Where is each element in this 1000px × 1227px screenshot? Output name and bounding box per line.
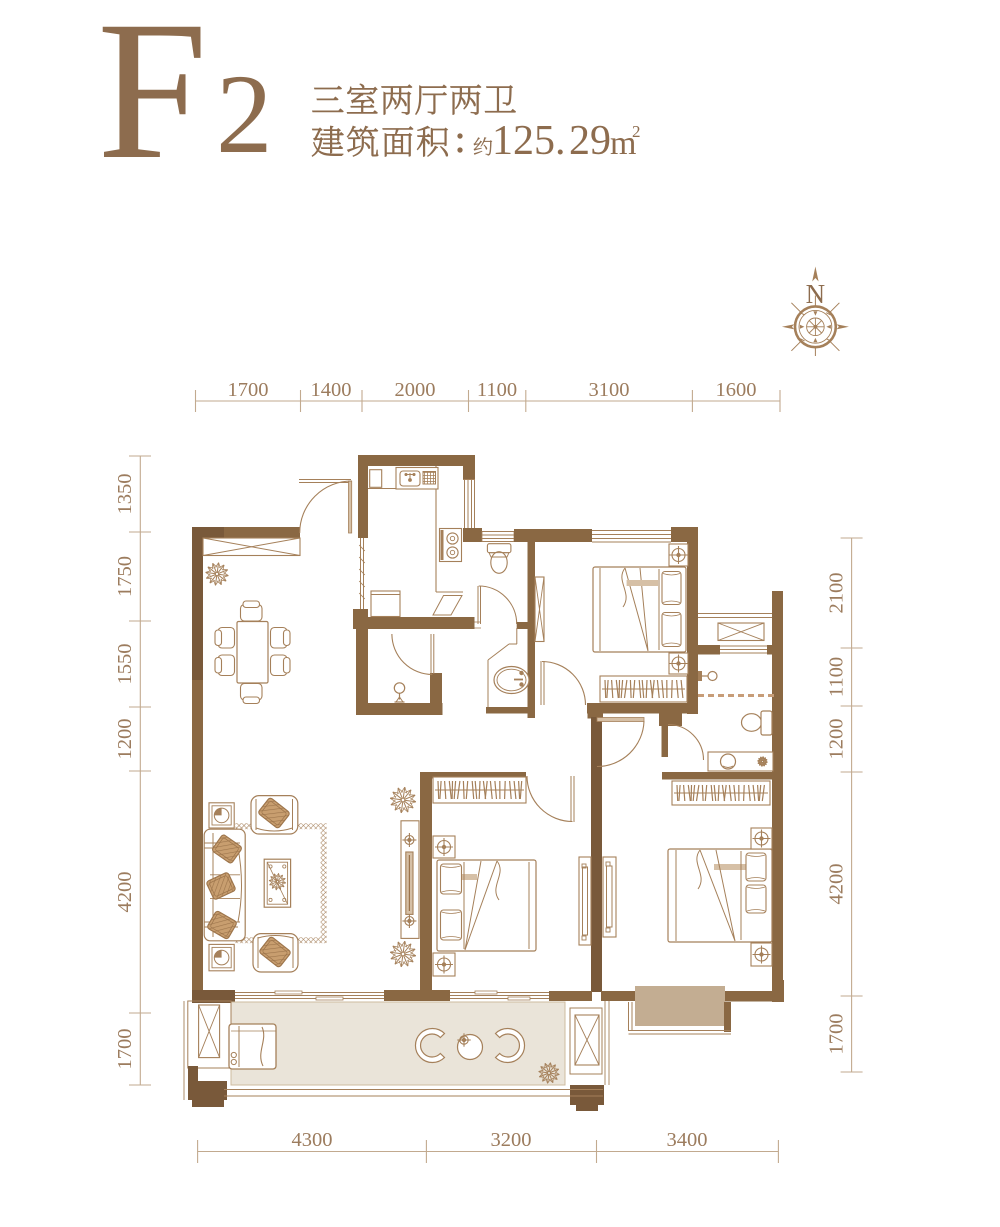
svg-text:4200: 4200 — [114, 872, 136, 913]
svg-text:2: 2 — [216, 52, 273, 177]
svg-text:2100: 2100 — [826, 573, 848, 614]
svg-text:F: F — [97, 0, 208, 201]
svg-text:2000: 2000 — [395, 379, 436, 401]
svg-text:3200: 3200 — [491, 1129, 532, 1151]
svg-text:29: 29 — [569, 118, 611, 164]
svg-text:1100: 1100 — [477, 379, 517, 401]
svg-text:2: 2 — [632, 122, 641, 141]
svg-text:1550: 1550 — [114, 644, 136, 685]
svg-text:1100: 1100 — [826, 657, 848, 697]
svg-text:3400: 3400 — [667, 1129, 708, 1151]
svg-text:1200: 1200 — [114, 719, 136, 760]
svg-text:125.: 125. — [492, 118, 566, 164]
svg-text:1400: 1400 — [311, 379, 352, 401]
svg-text:1600: 1600 — [716, 379, 757, 401]
svg-text:1700: 1700 — [228, 379, 269, 401]
svg-text:4200: 4200 — [826, 864, 848, 905]
svg-text:1700: 1700 — [826, 1014, 848, 1055]
svg-text:4300: 4300 — [292, 1129, 333, 1151]
svg-text:1750: 1750 — [114, 556, 136, 597]
svg-text:1700: 1700 — [114, 1029, 136, 1070]
svg-text:1350: 1350 — [114, 474, 136, 515]
svg-text:1200: 1200 — [826, 719, 848, 760]
svg-text:3100: 3100 — [589, 379, 630, 401]
